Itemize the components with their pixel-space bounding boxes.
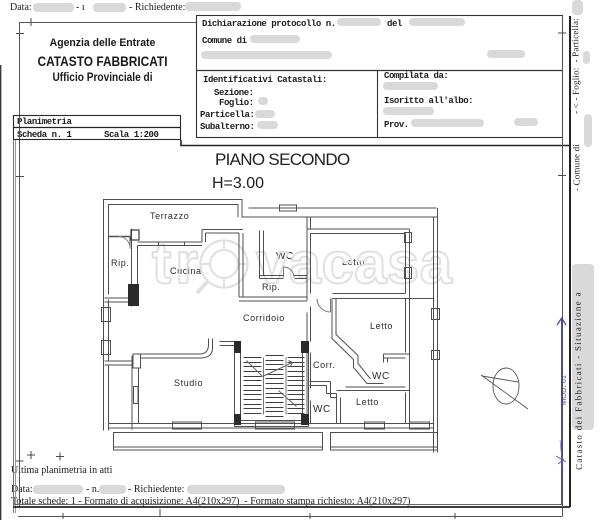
- svg-text:vacasa: vacasa: [256, 231, 453, 296]
- svg-text:tr: tr: [152, 231, 202, 296]
